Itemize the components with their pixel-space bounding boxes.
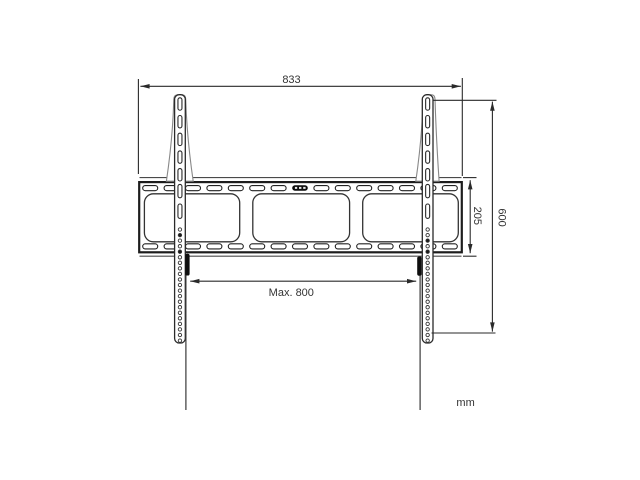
- svg-text:833: 833: [282, 74, 300, 86]
- svg-text:Max. 800: Max. 800: [269, 287, 314, 299]
- svg-text:205: 205: [471, 207, 483, 225]
- svg-text:600: 600: [496, 208, 508, 226]
- svg-text:mm: mm: [456, 397, 474, 409]
